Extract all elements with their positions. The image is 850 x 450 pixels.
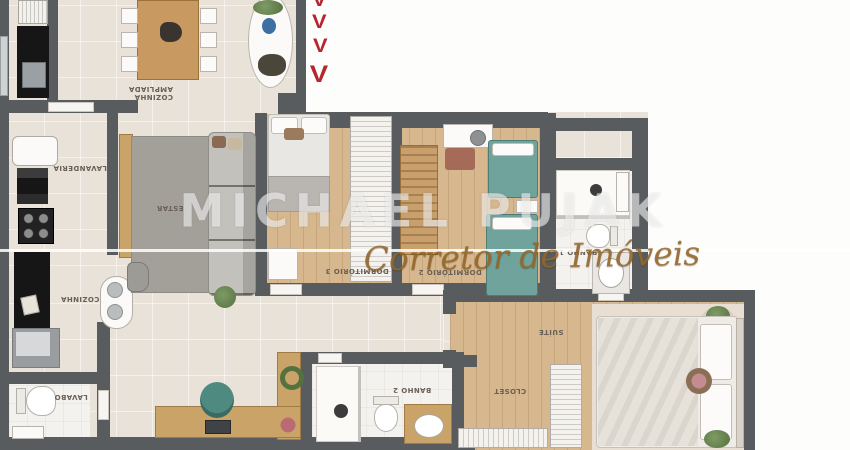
dining-chair	[200, 56, 217, 72]
dining-chair	[121, 8, 138, 24]
label-cozinha: COZINHA	[61, 295, 100, 303]
wreath	[280, 366, 304, 390]
vent-panel	[18, 0, 48, 24]
shower-head-banho2	[334, 404, 348, 418]
label-cozinha-ampliada-line1: COZINHA	[134, 93, 173, 101]
decor-dark	[258, 54, 286, 76]
wall-dining-right	[296, 0, 306, 96]
window-left	[0, 36, 8, 96]
wall-banho2-left	[300, 352, 312, 448]
red-v-mark: V	[312, 0, 327, 10]
sofa-pillow	[228, 138, 242, 150]
bed-dorm3-accent-pillow	[284, 128, 304, 140]
label-suite: SUÍTE	[539, 328, 564, 336]
fruit-bowl	[160, 22, 182, 42]
door-dormitorio3	[270, 284, 302, 295]
sofa-pillow	[212, 136, 226, 148]
closet-rack-vertical	[550, 364, 582, 448]
label-banho2: BANHO 2	[393, 386, 432, 394]
watermark-name: MICHAEL PUJAK	[179, 185, 668, 238]
office-chair	[200, 382, 234, 418]
cooktop	[18, 208, 54, 244]
bed-suite-duvet	[598, 318, 698, 446]
closet-rack-horizontal	[458, 428, 548, 448]
desk-chair-dorm2	[470, 130, 486, 146]
toilet-tank-lavabo	[16, 388, 26, 414]
wall-kitchen-living	[107, 113, 118, 255]
laundry-washer	[12, 136, 58, 166]
dining-chair	[200, 8, 217, 24]
dresser-dorm3	[268, 248, 298, 280]
wall-lavabo-right	[97, 322, 110, 448]
oven-stack	[17, 168, 48, 204]
door-banho2	[318, 353, 342, 363]
dining-chair	[121, 32, 138, 48]
red-v-mark: V	[310, 63, 328, 87]
door-lavabo	[98, 390, 109, 420]
plant-suite-corner	[704, 430, 730, 448]
toilet-banho2	[374, 404, 398, 432]
label-cozinha-ampliada-line2: AMPLIADA	[129, 85, 173, 93]
dining-chair	[200, 32, 217, 48]
kitchen-counter-black	[14, 252, 50, 328]
kitchen-sink-steel	[22, 62, 46, 88]
label-closet: CLOSET	[494, 387, 526, 395]
wall-lavabo-top	[0, 372, 97, 384]
stool	[107, 304, 123, 320]
red-v-mark: V	[312, 13, 327, 32]
wall-bedrooms-top	[296, 112, 548, 128]
plant-living	[214, 286, 236, 308]
door-dormitorio2	[412, 284, 444, 295]
mat-lavabo	[12, 426, 44, 439]
cutting-board	[20, 295, 39, 316]
door-kitchen	[48, 102, 94, 112]
stool	[107, 282, 123, 298]
watermark-tagline: Corretor de Imóveis	[363, 234, 700, 279]
wall-suite-right	[744, 290, 755, 450]
label-lavabo: LAVABO	[54, 393, 87, 401]
red-v-mark: V	[313, 37, 328, 56]
floor-plan-image: COZINHA AMPLIADA LAVANDERIA COZINHA ESTA…	[0, 0, 850, 450]
toilet-lavabo	[26, 386, 56, 416]
sink-banho2	[414, 414, 444, 438]
shower-glass-banho2	[358, 366, 361, 442]
bed-dorm2-a-pillow	[492, 143, 534, 156]
dining-chair	[121, 56, 138, 72]
cabinet-gray-top	[16, 332, 50, 356]
laptop	[205, 420, 231, 434]
bed-suite-flowers	[686, 368, 712, 394]
plant-console-top	[253, 0, 283, 15]
headboard-suite	[736, 318, 744, 448]
toilet-tank-banho2	[373, 396, 399, 405]
vase-blue	[262, 18, 276, 34]
wall-hall-suite-a	[443, 296, 456, 314]
flowers-office	[276, 414, 300, 436]
armchair	[127, 262, 149, 292]
bed-dorm3-pillow	[301, 117, 327, 134]
rug-dorm2	[445, 148, 475, 170]
label-lavanderia: LAVANDERIA	[53, 164, 107, 172]
